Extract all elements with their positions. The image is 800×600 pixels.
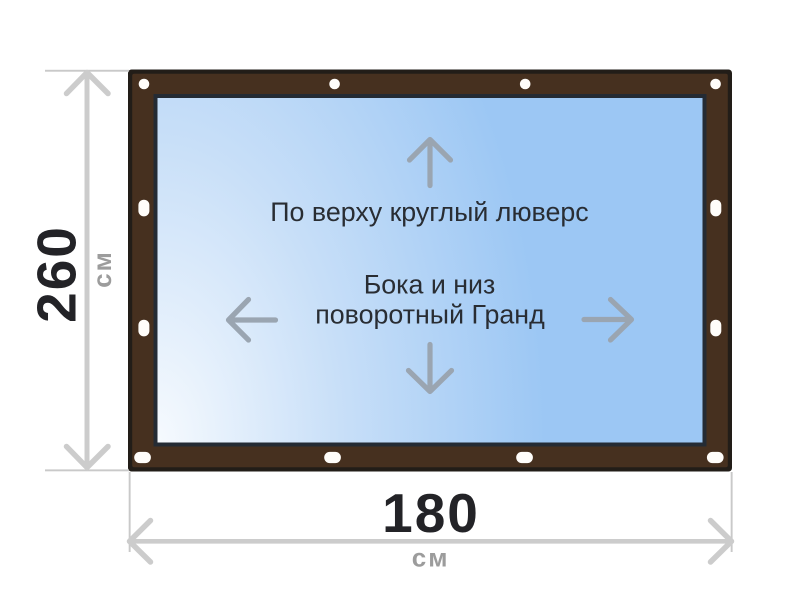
- svg-text:см: см: [412, 543, 450, 573]
- svg-text:По верху круглый люверс: По верху круглый люверс: [270, 197, 588, 227]
- svg-text:см: см: [87, 250, 117, 288]
- svg-text:поворотный Гранд: поворотный Гранд: [315, 300, 545, 330]
- svg-text:Бока и низ: Бока и низ: [364, 270, 496, 300]
- svg-text:180: 180: [382, 482, 480, 544]
- svg-text:260: 260: [25, 225, 87, 323]
